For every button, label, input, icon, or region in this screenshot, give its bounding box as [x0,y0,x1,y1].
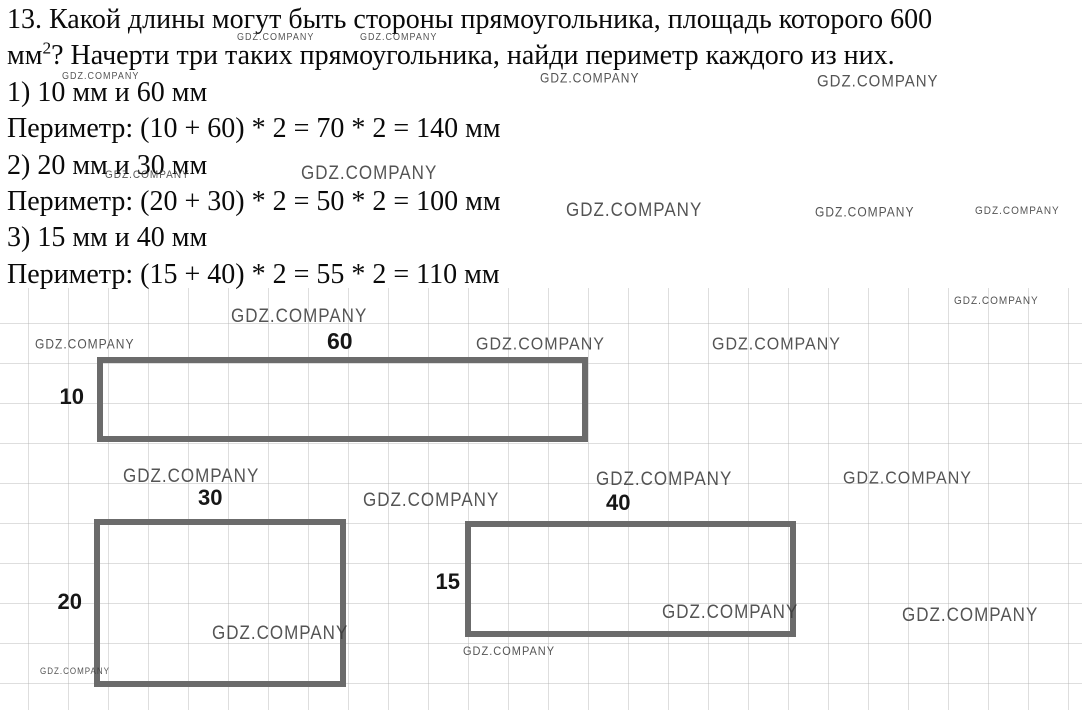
watermark-gdz-company: GDZ.COMPANY [35,336,134,352]
watermark-gdz-company: GDZ.COMPANY [902,604,1038,626]
watermark-gdz-company: GDZ.COMPANY [817,72,939,91]
rect2-height-label: 20 [48,589,82,615]
rect3-height-label: 15 [422,569,460,595]
watermark-gdz-company: GDZ.COMPANY [596,468,732,490]
watermark-gdz-company: GDZ.COMPANY [237,31,314,42]
watermark-gdz-company: GDZ.COMPANY [40,666,110,676]
solution-1-perimeter: Периметр: (10 + 60) * 2 = 70 * 2 = 140 м… [7,111,1077,147]
rectangle-60x10 [97,357,588,442]
superscript-2: 2 [42,39,51,58]
rect1-height-label: 10 [50,384,84,410]
watermark-gdz-company: GDZ.COMPANY [105,169,190,181]
rectangle-30x20 [94,519,346,687]
watermark-gdz-company: GDZ.COMPANY [212,622,348,644]
problem-statement-line-1: 13. Какой длины могут быть стороны прямо… [7,2,1077,38]
solution-3-sides: 3) 15 мм и 40 мм [7,220,1077,256]
rect1-width-label: 60 [327,328,353,355]
watermark-gdz-company: GDZ.COMPANY [540,70,639,86]
rect3-width-label: 40 [606,490,630,516]
watermark-gdz-company: GDZ.COMPANY [476,335,605,355]
watermark-gdz-company: GDZ.COMPANY [123,465,259,487]
watermark-gdz-company: GDZ.COMPANY [954,295,1039,307]
rect2-width-label: 30 [198,485,222,511]
watermark-gdz-company: GDZ.COMPANY [231,305,367,327]
watermark-gdz-company: GDZ.COMPANY [843,469,972,489]
watermark-gdz-company: GDZ.COMPANY [301,162,437,184]
unit-mm: мм [7,40,42,71]
watermark-gdz-company: GDZ.COMPANY [815,204,914,220]
watermark-gdz-company: GDZ.COMPANY [712,335,841,355]
problem-statement-continuation: ? Начерти три таких прямоугольника, найд… [51,40,894,71]
solution-3-perimeter: Периметр: (15 + 40) * 2 = 55 * 2 = 110 м… [7,257,1077,293]
watermark-gdz-company: GDZ.COMPANY [62,70,139,81]
solution-2-perimeter: Периметр: (20 + 30) * 2 = 50 * 2 = 100 м… [7,184,1077,220]
watermark-gdz-company: GDZ.COMPANY [363,489,499,511]
watermark-gdz-company: GDZ.COMPANY [360,31,437,42]
problem-and-solution-text: 13. Какой длины могут быть стороны прямо… [7,2,1077,293]
watermark-gdz-company: GDZ.COMPANY [975,205,1060,217]
watermark-gdz-company: GDZ.COMPANY [566,199,702,221]
watermark-gdz-company: GDZ.COMPANY [463,645,555,658]
watermark-gdz-company: GDZ.COMPANY [662,601,798,623]
